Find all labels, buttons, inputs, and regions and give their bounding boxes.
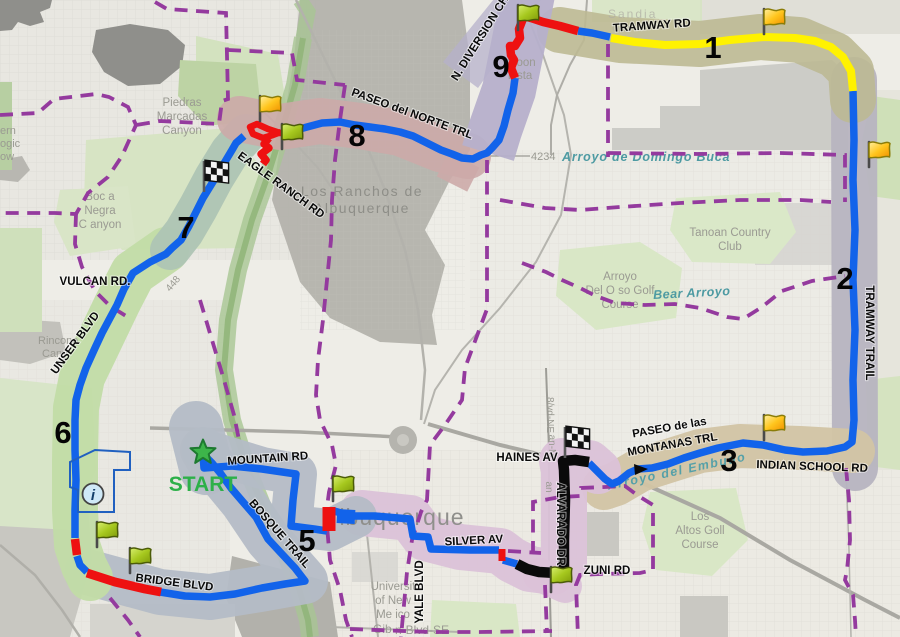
svg-text:Arroyo: Arroyo bbox=[603, 271, 637, 283]
svg-text:4234: 4234 bbox=[531, 151, 555, 163]
svg-text:Los Ranchos de: Los Ranchos de bbox=[301, 183, 423, 199]
svg-text:1: 1 bbox=[704, 30, 721, 65]
svg-text:7: 7 bbox=[177, 210, 194, 245]
svg-text:8: 8 bbox=[348, 118, 365, 153]
svg-text:START: START bbox=[169, 473, 238, 496]
svg-text:Albuquerque: Albuquerque bbox=[314, 200, 410, 216]
svg-text:Sandia: Sandia bbox=[608, 7, 657, 21]
svg-text:C anyon: C anyon bbox=[79, 219, 122, 231]
svg-text:Me ico: Me ico bbox=[376, 609, 410, 621]
svg-text:Negra: Negra bbox=[84, 205, 116, 217]
svg-text:YALE BLVD: YALE BLVD bbox=[414, 560, 426, 623]
svg-text:TRAMWAY TRAIL: TRAMWAY TRAIL bbox=[863, 285, 875, 380]
svg-text:Altos Goll: Altos Goll bbox=[675, 525, 724, 537]
svg-text:VULCAN RD.: VULCAN RD. bbox=[60, 276, 131, 288]
svg-text:ZUNI RD: ZUNI RD bbox=[584, 565, 631, 577]
svg-text:5: 5 bbox=[298, 523, 315, 558]
svg-text:6: 6 bbox=[54, 415, 71, 450]
svg-text:ALVARADO DR: ALVARADO DR bbox=[554, 482, 566, 566]
svg-text:Los: Los bbox=[691, 511, 710, 523]
svg-text:3: 3 bbox=[720, 443, 737, 478]
svg-text:Canyon: Canyon bbox=[162, 125, 202, 137]
svg-text:Tanoan Country: Tanoan Country bbox=[689, 227, 770, 239]
svg-text:9: 9 bbox=[492, 49, 509, 84]
svg-text:ern: ern bbox=[0, 125, 16, 137]
svg-text:HAINES AV: HAINES AV bbox=[496, 452, 558, 464]
svg-text:ow: ow bbox=[0, 151, 14, 163]
svg-text:8/vd-NE: 8/vd-NE bbox=[544, 397, 555, 433]
svg-text:Piedras: Piedras bbox=[163, 97, 202, 109]
svg-text:Club: Club bbox=[718, 241, 742, 253]
svg-text:Del O so Golf: Del O so Golf bbox=[585, 285, 655, 297]
svg-text:Universit: Universit bbox=[371, 581, 417, 593]
svg-text:2: 2 bbox=[836, 261, 853, 296]
svg-text:Course: Course bbox=[681, 539, 718, 551]
svg-text:an: an bbox=[543, 481, 554, 492]
svg-text:ogic: ogic bbox=[0, 138, 21, 150]
